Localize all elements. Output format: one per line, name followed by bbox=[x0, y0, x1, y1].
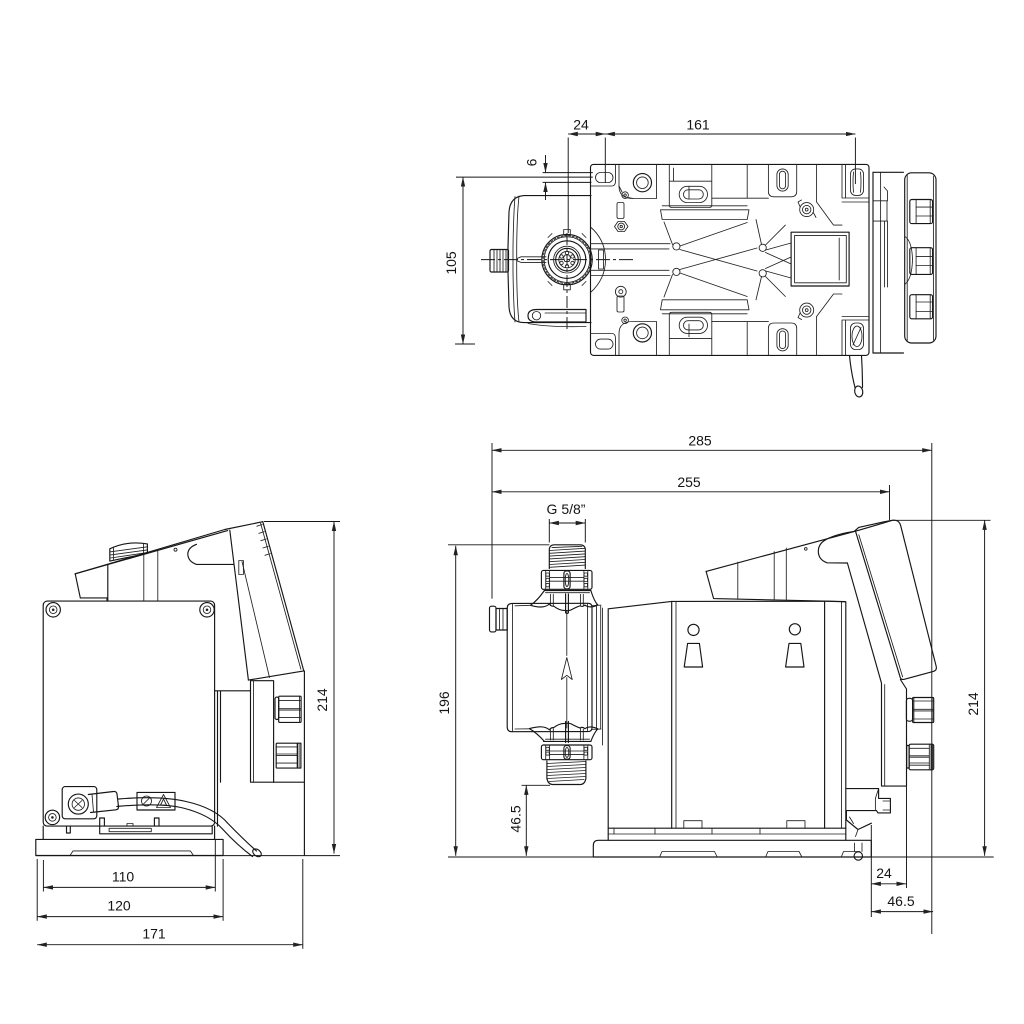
svg-text:110: 110 bbox=[112, 869, 135, 885]
svg-text:24: 24 bbox=[876, 865, 892, 881]
svg-text:120: 120 bbox=[107, 898, 131, 914]
svg-text:46.5: 46.5 bbox=[508, 805, 524, 832]
svg-text:255: 255 bbox=[677, 474, 701, 490]
svg-text:6: 6 bbox=[524, 158, 540, 166]
svg-text:24: 24 bbox=[573, 117, 589, 133]
svg-text:105: 105 bbox=[443, 251, 459, 275]
svg-text:G 5/8”: G 5/8” bbox=[547, 501, 586, 517]
svg-text:171: 171 bbox=[142, 926, 166, 942]
svg-text:161: 161 bbox=[686, 117, 710, 133]
svg-text:214: 214 bbox=[965, 692, 981, 716]
svg-text:196: 196 bbox=[436, 691, 452, 715]
svg-text:214: 214 bbox=[314, 688, 330, 712]
svg-text:285: 285 bbox=[688, 433, 712, 449]
svg-text:46.5: 46.5 bbox=[887, 893, 914, 909]
